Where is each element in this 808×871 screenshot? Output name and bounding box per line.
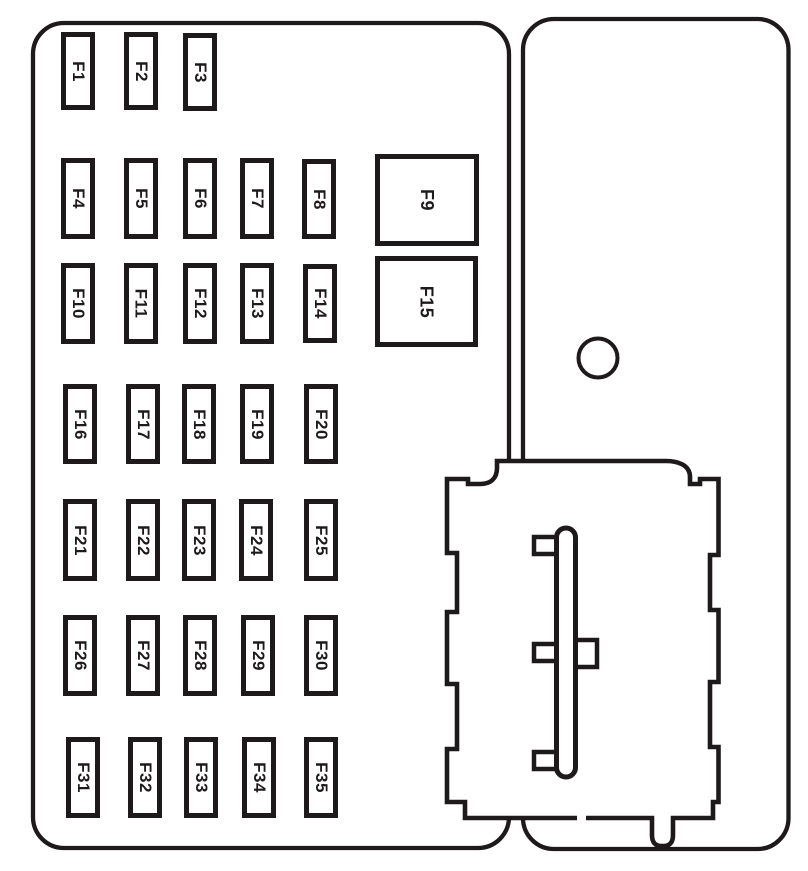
fuse-label: F27 bbox=[135, 640, 152, 671]
fuse-f13: F13 bbox=[240, 263, 274, 344]
fuse-f12: F12 bbox=[183, 263, 217, 344]
fuse-f3: F3 bbox=[183, 33, 217, 111]
fuse-label: F2 bbox=[133, 61, 150, 82]
fuse-f7: F7 bbox=[240, 158, 274, 239]
fuse-grid: F1F2F3F4F5F6F7F8F9F10F11F12F13F14F15F16F… bbox=[0, 0, 808, 871]
fuse-f24: F24 bbox=[239, 499, 273, 581]
fuse-label: F16 bbox=[72, 409, 89, 440]
fuse-f9: F9 bbox=[375, 154, 479, 246]
fuse-label: F18 bbox=[191, 409, 208, 440]
fuse-label: F14 bbox=[312, 288, 329, 319]
fuse-f16: F16 bbox=[63, 384, 97, 464]
fuse-label: F10 bbox=[70, 288, 87, 319]
fuse-label: F20 bbox=[313, 409, 330, 440]
fuse-label: F9 bbox=[418, 189, 436, 211]
fuse-label: F22 bbox=[135, 525, 152, 556]
fuse-f26: F26 bbox=[63, 615, 97, 696]
fuse-label: F4 bbox=[70, 188, 87, 209]
fuse-f22: F22 bbox=[126, 499, 160, 581]
fuse-f31: F31 bbox=[66, 737, 100, 818]
fuse-label: F6 bbox=[192, 188, 209, 209]
fuse-label: F21 bbox=[72, 525, 89, 556]
fuse-label: F35 bbox=[313, 762, 330, 793]
fuse-f30: F30 bbox=[304, 615, 338, 696]
fuse-label: F12 bbox=[192, 288, 209, 319]
fuse-f21: F21 bbox=[63, 499, 97, 581]
fuse-f2: F2 bbox=[124, 32, 158, 110]
fuse-label: F25 bbox=[313, 525, 330, 556]
fuse-label: F15 bbox=[418, 285, 436, 318]
fuse-f8: F8 bbox=[302, 159, 336, 239]
fuse-label: F29 bbox=[250, 640, 267, 671]
fuse-label: F30 bbox=[313, 640, 330, 671]
fuse-f4: F4 bbox=[61, 158, 95, 239]
fuse-label: F23 bbox=[191, 525, 208, 556]
fuse-f32: F32 bbox=[128, 737, 162, 818]
fuse-f15: F15 bbox=[375, 256, 478, 347]
fuse-label: F13 bbox=[249, 288, 266, 319]
fuse-f25: F25 bbox=[304, 499, 338, 581]
fuse-label: F34 bbox=[251, 762, 268, 793]
fuse-label: F3 bbox=[192, 62, 209, 83]
fuse-f1: F1 bbox=[61, 32, 95, 110]
fuse-f5: F5 bbox=[124, 158, 158, 239]
fuse-f18: F18 bbox=[182, 384, 216, 464]
fuse-label: F17 bbox=[135, 409, 152, 440]
fuse-label: F26 bbox=[72, 640, 89, 671]
fuse-label: F24 bbox=[248, 525, 265, 556]
fuse-label: F19 bbox=[249, 409, 266, 440]
fuse-f28: F28 bbox=[183, 615, 217, 696]
fuse-label: F11 bbox=[133, 289, 150, 319]
fuse-f11: F11 bbox=[124, 263, 158, 344]
fuse-f34: F34 bbox=[242, 737, 276, 818]
fuse-label: F7 bbox=[249, 188, 266, 209]
fuse-label: F33 bbox=[193, 762, 210, 793]
fuse-label: F32 bbox=[137, 762, 154, 793]
fuse-f33: F33 bbox=[184, 737, 218, 818]
fuse-label: F1 bbox=[70, 61, 87, 82]
fuse-f27: F27 bbox=[126, 615, 160, 696]
fuse-f23: F23 bbox=[182, 499, 216, 581]
fuse-f29: F29 bbox=[241, 615, 275, 696]
fuse-box-diagram: F1F2F3F4F5F6F7F8F9F10F11F12F13F14F15F16F… bbox=[0, 0, 808, 871]
fuse-f17: F17 bbox=[126, 384, 160, 464]
fuse-f14: F14 bbox=[303, 264, 337, 343]
fuse-f10: F10 bbox=[61, 263, 95, 344]
fuse-label: F28 bbox=[192, 640, 209, 671]
fuse-f20: F20 bbox=[304, 384, 338, 464]
fuse-f6: F6 bbox=[183, 158, 217, 239]
fuse-f35: F35 bbox=[304, 737, 338, 818]
fuse-f19: F19 bbox=[240, 384, 274, 464]
fuse-label: F31 bbox=[75, 762, 92, 793]
fuse-label: F5 bbox=[133, 188, 150, 209]
fuse-label: F8 bbox=[311, 189, 328, 210]
